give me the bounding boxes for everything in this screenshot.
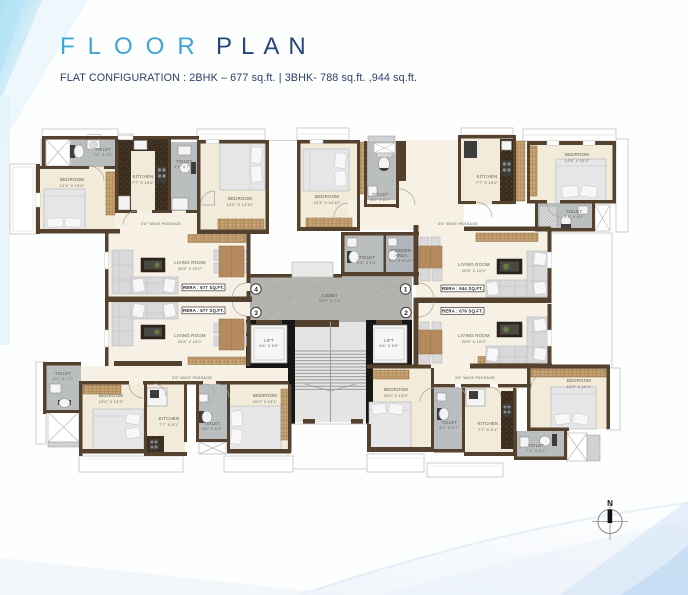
svg-text:7'7" X 10'0": 7'7" X 10'0" <box>132 180 155 185</box>
svg-text:KITCHEN: KITCHEN <box>159 416 180 421</box>
svg-text:5'6" X 6'1": 5'6" X 6'1" <box>202 426 222 431</box>
svg-text:7'7" X 8'1": 7'7" X 8'1" <box>478 427 498 432</box>
svg-text:KITCHEN: KITCHEN <box>133 174 154 179</box>
svg-text:7'1" X 4'1": 7'1" X 4'1" <box>526 448 546 453</box>
svg-text:RERA : 677 SQ.FT.: RERA : 677 SQ.FT. <box>183 308 224 313</box>
svg-text:LIVING ROOM: LIVING ROOM <box>458 262 490 267</box>
svg-text:LIVING ROOM: LIVING ROOM <box>174 260 206 265</box>
svg-text:3'0" WIDE PASSAGE: 3'0" WIDE PASSAGE <box>172 375 213 380</box>
svg-text:4'1" X 7'1": 4'1" X 7'1" <box>53 376 73 381</box>
svg-text:10'0" X 13'10": 10'0" X 13'10" <box>227 202 254 207</box>
svg-text:4'1" X 6'1/2": 4'1" X 6'1/2" <box>389 258 413 263</box>
svg-text:PLAN: PLAN <box>216 33 315 60</box>
svg-text:4'6" X 6'6": 4'6" X 6'6" <box>379 343 399 348</box>
svg-text:RERA : 677 SQ.FT.: RERA : 677 SQ.FT. <box>183 285 224 290</box>
svg-text:13'9" X 10'3": 13'9" X 10'3" <box>567 384 592 389</box>
svg-text:4'6" X 6'6": 4'6" X 6'6" <box>259 343 279 348</box>
svg-text:BEDROOM: BEDROOM <box>60 177 84 182</box>
svg-text:20'8" X 10'0": 20'8" X 10'0" <box>178 339 203 344</box>
svg-text:BEDROOM: BEDROOM <box>567 378 591 383</box>
svg-text:23'9" X 7'1": 23'9" X 7'1" <box>319 298 342 303</box>
svg-text:7'7" X 10'0": 7'7" X 10'0" <box>476 180 499 185</box>
svg-text:20'8" X 10'0": 20'8" X 10'0" <box>178 266 203 271</box>
svg-text:LIVING ROOM: LIVING ROOM <box>174 333 206 338</box>
svg-text:4: 4 <box>254 287 258 294</box>
svg-text:8'4" X 4'1": 8'4" X 4'1" <box>564 214 584 219</box>
svg-text:RERA : 676 SQ.FT.: RERA : 676 SQ.FT. <box>442 309 483 314</box>
svg-text:7'7" X 8'1": 7'7" X 8'1" <box>159 422 179 427</box>
svg-text:7'1" X 4'1": 7'1" X 4'1" <box>93 152 113 157</box>
svg-text:10'3" X 12'10": 10'3" X 12'10" <box>314 200 341 205</box>
svg-text:KITCHEN: KITCHEN <box>478 421 499 426</box>
svg-text:10'0" X 13'1": 10'0" X 13'1" <box>253 399 278 404</box>
svg-text:3'0" WIDE PASSAGE: 3'0" WIDE PASSAGE <box>455 375 496 380</box>
svg-text:BEDROOM: BEDROOM <box>228 196 252 201</box>
svg-text:14'8" X 10'0": 14'8" X 10'0" <box>565 158 590 163</box>
svg-text:BEDROOM: BEDROOM <box>384 387 408 392</box>
svg-text:FLAT CONFIGURATION : 2BHK – 67: FLAT CONFIGURATION : 2BHK – 677 sq.ft. |… <box>60 72 417 84</box>
svg-text:LIVING ROOM: LIVING ROOM <box>458 333 490 338</box>
svg-text:FLOOR: FLOOR <box>60 33 208 60</box>
svg-text:KITCHEN: KITCHEN <box>477 174 498 179</box>
svg-text:BEDROOM: BEDROOM <box>315 194 339 199</box>
svg-text:BEDROOM: BEDROOM <box>99 393 123 398</box>
svg-text:5'6" X 6'3": 5'6" X 6'3" <box>357 260 377 265</box>
svg-text:5'6" X 6'1": 5'6" X 6'1" <box>370 197 390 202</box>
svg-text:3: 3 <box>254 310 258 317</box>
svg-text:BEDROOM: BEDROOM <box>565 152 589 157</box>
svg-text:10'0" X 13'3": 10'0" X 13'3" <box>99 399 124 404</box>
svg-text:2: 2 <box>404 310 408 317</box>
svg-text:RERA : 944 SQ.FT.: RERA : 944 SQ.FT. <box>442 286 483 291</box>
svg-text:10'0" X 13'0": 10'0" X 13'0" <box>384 393 409 398</box>
svg-text:3'0" WIDE PASSAGE: 3'0" WIDE PASSAGE <box>141 221 182 226</box>
svg-text:4'1" X 5'7": 4'1" X 5'7" <box>439 425 459 430</box>
svg-text:3'0" WIDE PASSAGE: 3'0" WIDE PASSAGE <box>438 221 479 226</box>
svg-text:1: 1 <box>404 287 408 294</box>
svg-text:20'8" X 10'0": 20'8" X 10'0" <box>462 339 487 344</box>
svg-text:20'8" X 10'0": 20'8" X 10'0" <box>462 268 487 273</box>
svg-text:BEDROOM: BEDROOM <box>253 393 277 398</box>
svg-text:4'1" X 7'7": 4'1" X 7'7" <box>174 164 194 169</box>
svg-text:12'4" X 10'0": 12'4" X 10'0" <box>60 183 85 188</box>
